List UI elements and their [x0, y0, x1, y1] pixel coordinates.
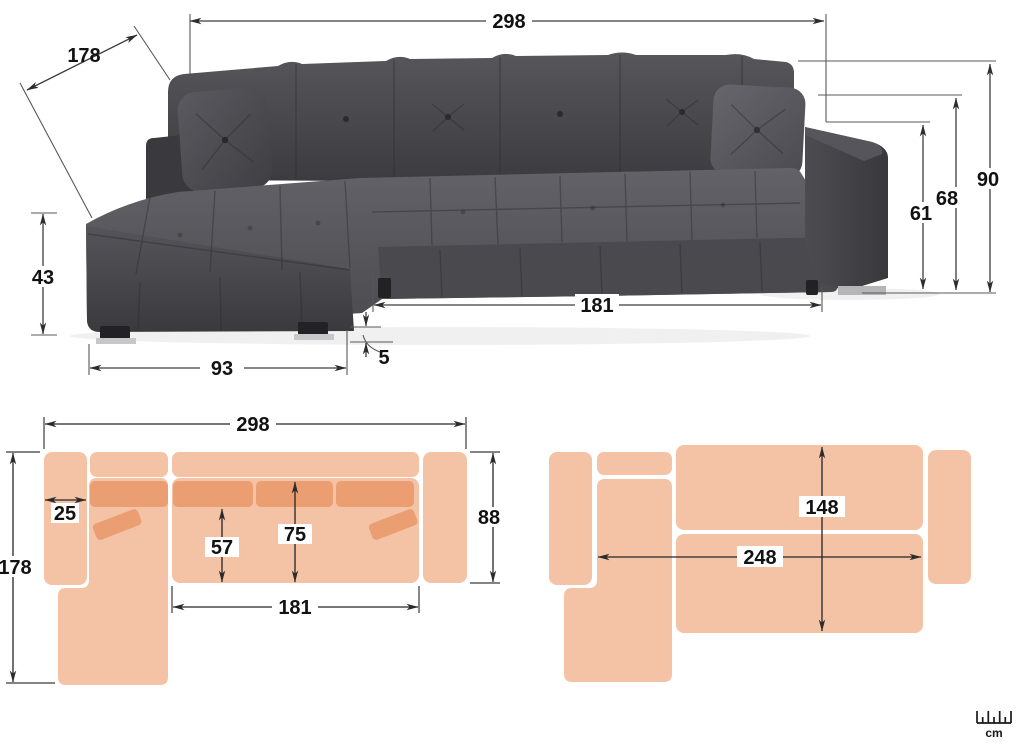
label-bed-width: 248: [743, 547, 776, 569]
ruler-icon: [977, 711, 1011, 723]
dim-seat-height: 43: [26, 213, 60, 335]
plan-top-view: 298 178 25 57 75 88: [0, 413, 506, 685]
label-plan-seat-depth: 57: [211, 537, 233, 559]
label-plan-deck-depth: 75: [284, 524, 306, 546]
diagram-canvas: 298 178 43 93 5: [0, 0, 1020, 745]
label-chaise-front-width: 93: [211, 358, 233, 380]
accent-pillow-left: [177, 87, 274, 193]
label-total-width: 298: [492, 11, 525, 33]
plan-backrest-corner: [90, 452, 168, 477]
plan-dim-body-depth: 88: [470, 452, 506, 583]
label-plan-body-depth: 88: [478, 507, 500, 529]
label-leg-height: 5: [378, 347, 389, 369]
label-total-depth: 178: [67, 45, 100, 67]
plan-armrest-right: [423, 452, 467, 583]
label-seat-width: 181: [580, 295, 613, 317]
sofa-armrest-right: [805, 127, 888, 291]
label-plan-armrest-width: 25: [54, 503, 76, 525]
sofa-seat-and-chaise: [86, 168, 838, 332]
plan-dim-seat-width: 181: [172, 586, 419, 619]
label-plan-seat-width: 181: [278, 597, 311, 619]
label-plan-total-depth: 178: [0, 557, 32, 579]
label-seat-height: 43: [32, 267, 54, 289]
label-armrest-height: 61: [910, 203, 932, 225]
bed-surface-lower: [676, 534, 923, 633]
plan-backrest-long: [172, 452, 419, 477]
unit-badge: cm: [977, 711, 1011, 740]
bed-armrest-right: [928, 450, 971, 584]
plan-bed-view: 148 248: [549, 445, 971, 682]
plan-dim-total-width: 298: [44, 413, 466, 449]
bed-surface-upper: [676, 445, 923, 530]
dimension-sheet: 298 178 43 93 5: [0, 0, 1020, 745]
label-bed-depth: 148: [805, 497, 838, 519]
label-plan-total-width: 298: [236, 414, 269, 436]
bed-armrest-left: [549, 452, 592, 585]
plan-seat-cushions: [90, 481, 414, 507]
sofa-photo-illustration: [70, 53, 940, 346]
accent-pillow-right: [710, 84, 807, 179]
label-total-height: 90: [977, 169, 999, 191]
unit-label: cm: [985, 726, 1002, 740]
label-backrest-height: 68: [936, 188, 958, 210]
bed-backrest-corner: [597, 452, 672, 475]
